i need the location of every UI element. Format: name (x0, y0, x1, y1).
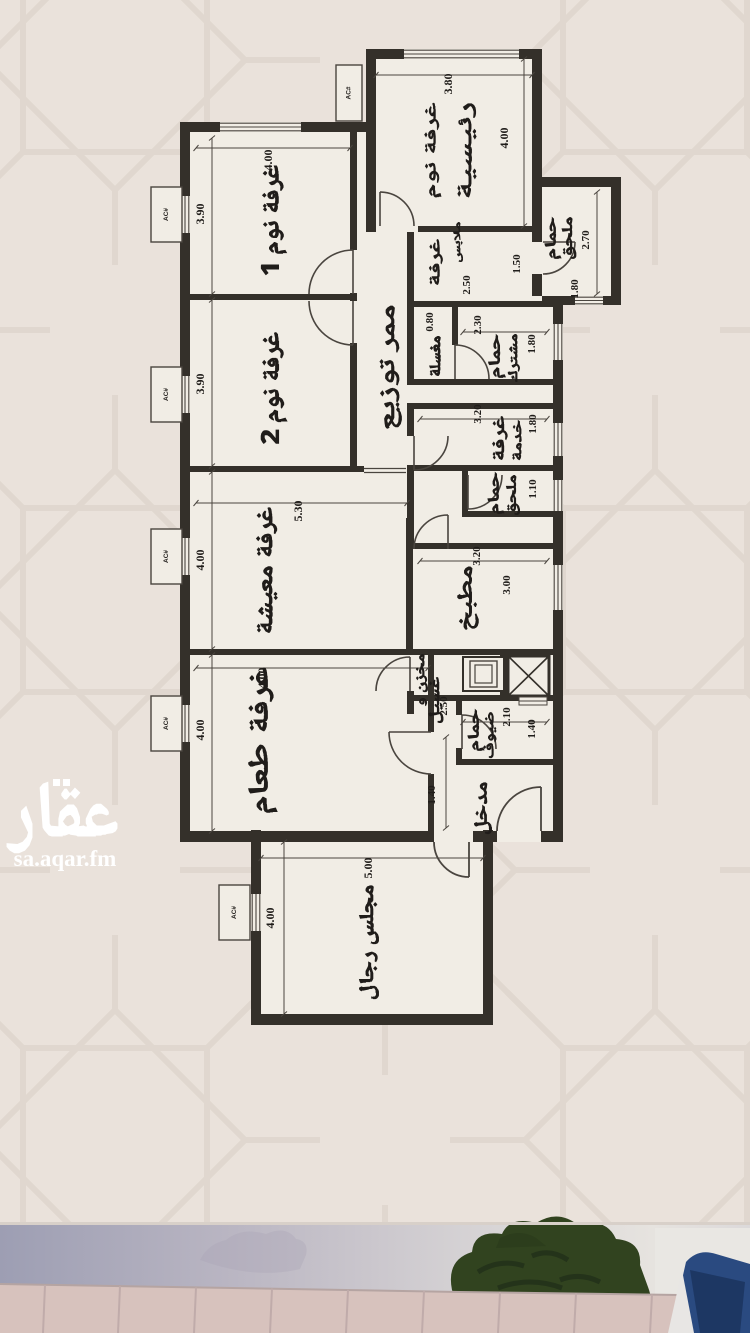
svg-text:3.20: 3.20 (471, 546, 483, 566)
svg-text:AC#: AC# (346, 86, 353, 99)
svg-text:3.80: 3.80 (441, 74, 455, 95)
svg-text:AC#: AC# (163, 717, 170, 730)
svg-text:2.50: 2.50 (438, 696, 450, 716)
svg-text:AC#: AC# (163, 550, 170, 563)
svg-text:4.00: 4.00 (255, 668, 269, 689)
svg-text:4.00: 4.00 (497, 128, 511, 149)
svg-text:AC#: AC# (163, 388, 170, 401)
svg-text:2.50: 2.50 (461, 275, 473, 295)
svg-text:4.00: 4.00 (193, 550, 207, 571)
svg-text:3.20: 3.20 (472, 404, 484, 424)
svg-text:2.10: 2.10 (501, 707, 513, 727)
svg-text:3.00: 3.00 (501, 575, 513, 595)
svg-text:3.90: 3.90 (193, 374, 207, 395)
svg-text:2.30: 2.30 (472, 315, 484, 335)
svg-text:5.00: 5.00 (361, 858, 375, 879)
svg-text:3.90: 3.90 (193, 204, 207, 225)
svg-text:4.00: 4.00 (193, 720, 207, 741)
svg-text:1.40: 1.40 (526, 719, 538, 739)
svg-text:AC#: AC# (163, 208, 170, 221)
svg-text:2.70: 2.70 (580, 230, 592, 250)
svg-text:1.40: 1.40 (426, 785, 438, 805)
svg-text:5.30: 5.30 (291, 501, 305, 522)
svg-text:1.50: 1.50 (511, 254, 523, 274)
svg-text:4.00: 4.00 (263, 908, 277, 929)
svg-text:0.80: 0.80 (424, 312, 436, 332)
svg-text:1.80: 1.80 (526, 334, 538, 354)
svg-text:sa.aqar.fm: sa.aqar.fm (14, 846, 117, 871)
svg-text:1.80: 1.80 (527, 414, 539, 434)
svg-text:1.80: 1.80 (569, 279, 581, 299)
svg-text:4.00: 4.00 (261, 150, 275, 171)
svg-text:AC#: AC# (231, 906, 238, 919)
svg-text:1.10: 1.10 (527, 479, 539, 499)
